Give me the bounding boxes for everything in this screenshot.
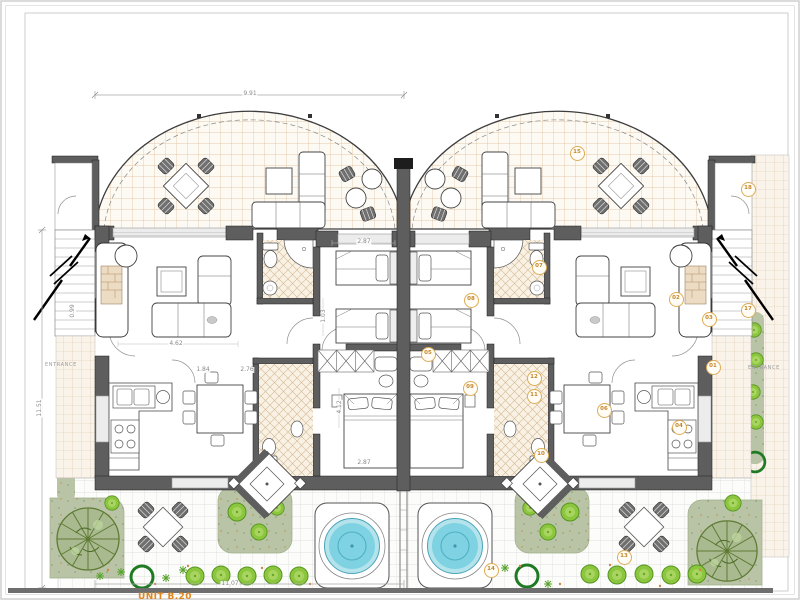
bottom-boundary bbox=[8, 588, 773, 593]
tree-icon bbox=[57, 508, 119, 570]
floor-plan-drawing bbox=[0, 0, 800, 600]
floorplan-page: 01 02 03 04 05 06 07 08 09 10 11 12 13 1… bbox=[0, 0, 800, 600]
